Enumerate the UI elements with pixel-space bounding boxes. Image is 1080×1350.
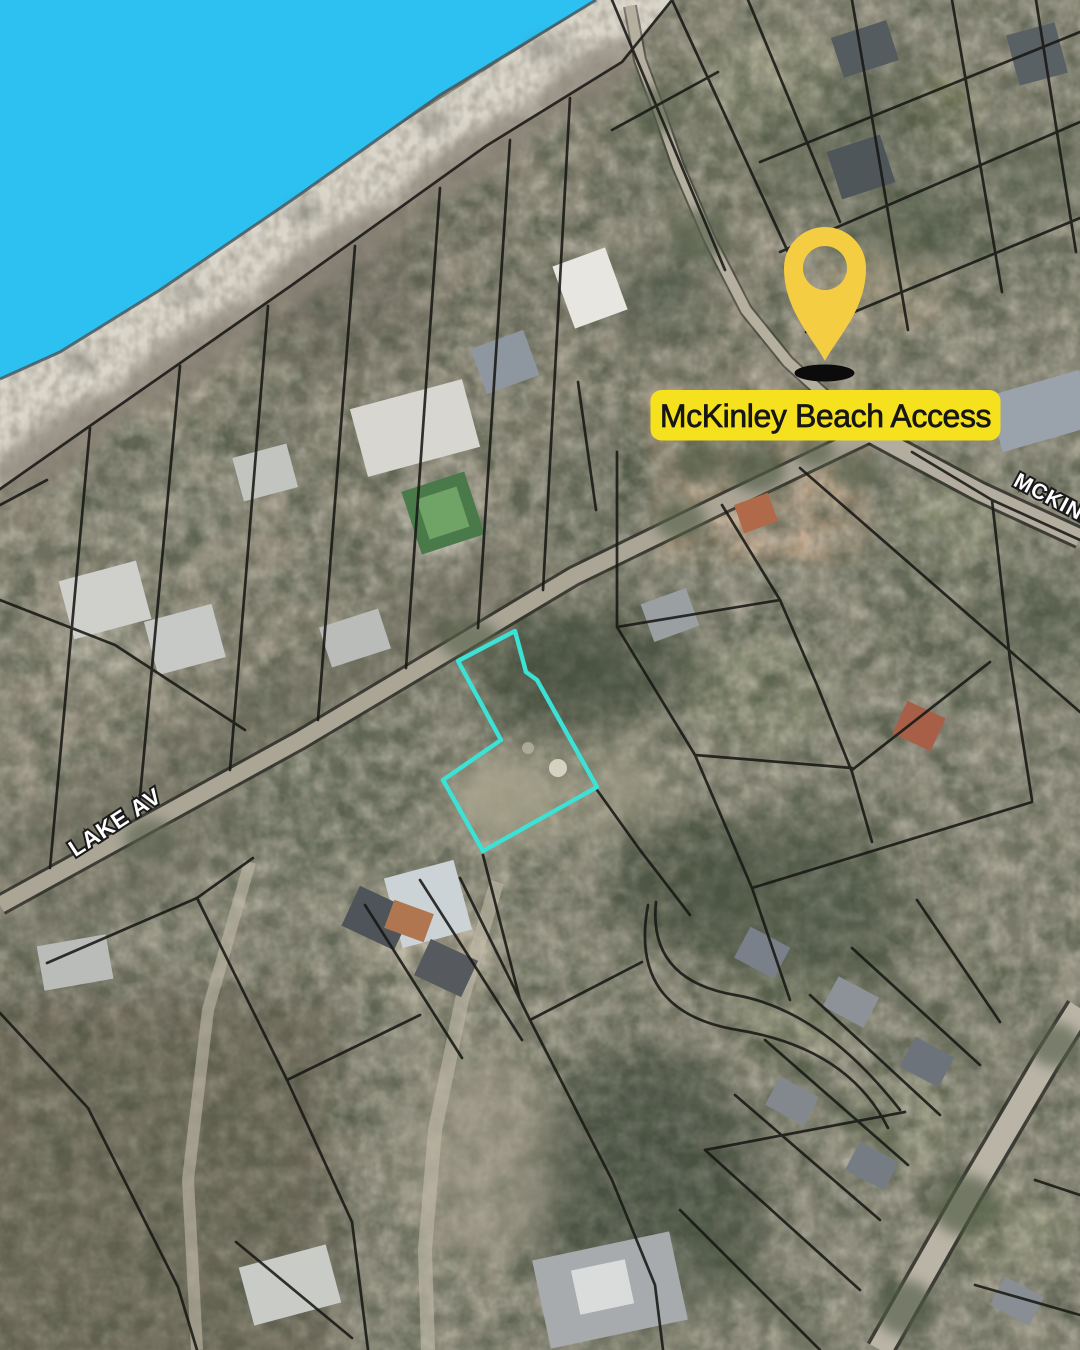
svg-text:McKinley Beach Access: McKinley Beach Access: [660, 398, 991, 434]
